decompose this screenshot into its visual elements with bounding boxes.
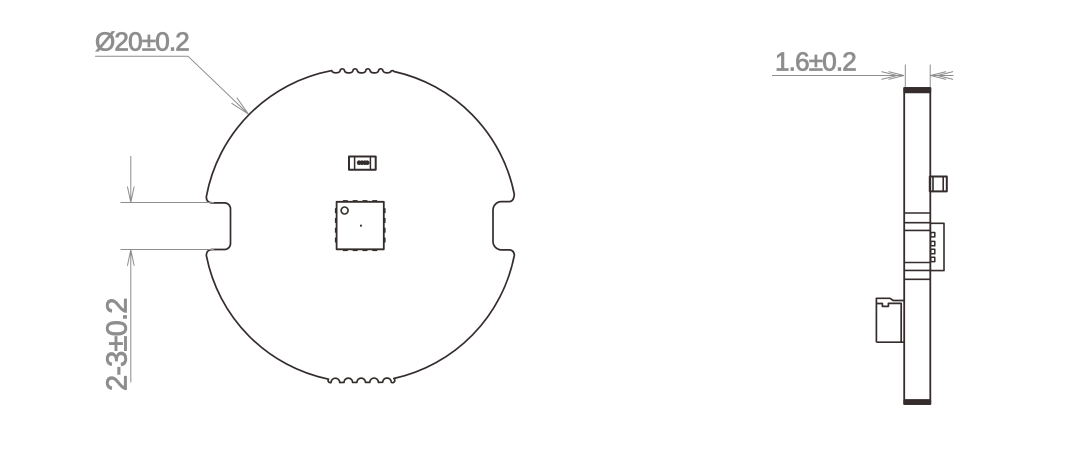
svg-text:Ø20±0.2: Ø20±0.2 — [95, 27, 189, 57]
svg-text:2-3±0.2: 2-3±0.2 — [102, 298, 134, 391]
svg-text:1.6±0.2: 1.6±0.2 — [775, 47, 856, 77]
